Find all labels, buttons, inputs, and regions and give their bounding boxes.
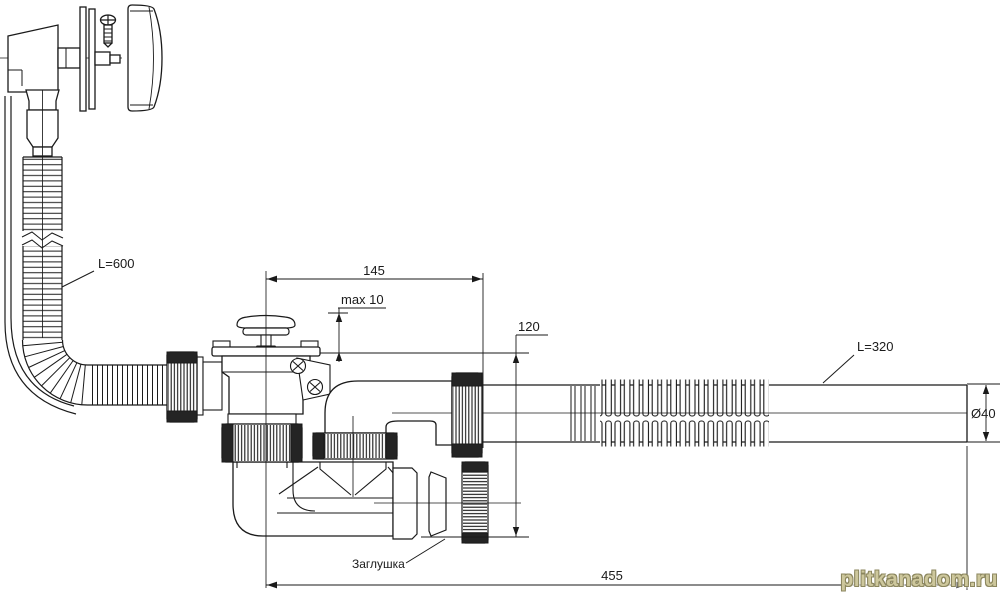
plug-label: Заглушка <box>352 557 405 571</box>
dim-diameter-label: Ø40 <box>971 406 996 421</box>
plug <box>429 472 446 536</box>
cleanout-cap-nut <box>462 462 488 543</box>
drawing-canvas: 145 max 10 120 455 Ø40 L=600 L=320 Заглу… <box>0 0 1000 595</box>
dim-455-label: 455 <box>601 568 623 583</box>
siphon-trap <box>233 462 488 543</box>
leader-l320 <box>823 355 854 383</box>
dim-max10-label: max 10 <box>341 292 384 307</box>
overflow-hose-length-label: L=600 <box>98 256 135 271</box>
screw <box>101 15 116 47</box>
overflow-housing <box>8 25 58 92</box>
dim-120-label: 120 <box>518 319 540 334</box>
technical-drawing: 145 max 10 120 455 Ø40 L=600 L=320 Заглу… <box>0 0 1000 595</box>
overflow-flange-plate <box>80 7 86 111</box>
leader-plug <box>406 539 445 563</box>
leader-l600 <box>62 271 94 287</box>
pipe-nut <box>452 373 482 457</box>
watermark: plitkanadom.ru <box>840 568 998 592</box>
overflow-cover <box>128 5 162 111</box>
dim-145-label: 145 <box>363 263 385 278</box>
cleanout-bushing <box>393 468 417 539</box>
overflow-hose <box>21 90 167 405</box>
overflow-nut <box>167 352 222 422</box>
drain-tee <box>212 316 330 463</box>
branch-nut <box>313 433 397 459</box>
overflow-gasket-plate <box>89 9 95 109</box>
tee-bottom-nut <box>222 424 302 462</box>
outlet-hose-length-label: L=320 <box>857 339 894 354</box>
